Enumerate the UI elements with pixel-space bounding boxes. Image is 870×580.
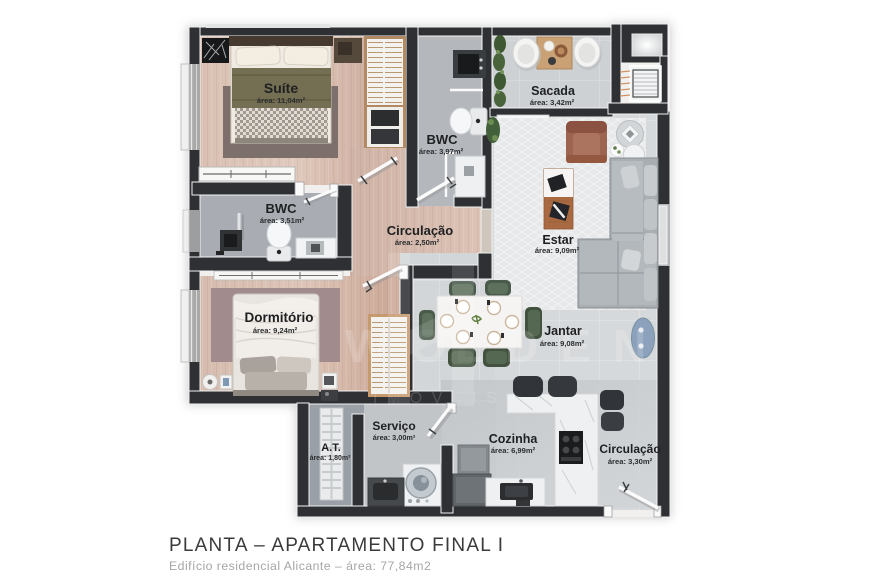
svg-text:área: 3,51m²: área: 3,51m² bbox=[260, 216, 305, 225]
svg-text:PLANTA – APARTAMENTO FINAL I: PLANTA – APARTAMENTO FINAL I bbox=[169, 535, 504, 556]
svg-text:WO: WO bbox=[345, 320, 468, 372]
svg-text:área: 11,04m²: área: 11,04m² bbox=[257, 96, 306, 105]
svg-text:área: 3,30m²: área: 3,30m² bbox=[608, 457, 653, 466]
svg-text:IMÓVEIS: IMÓVEIS bbox=[373, 388, 506, 407]
svg-text:Cozinha: Cozinha bbox=[489, 432, 539, 446]
svg-text:área: 2,50m²: área: 2,50m² bbox=[395, 238, 440, 247]
svg-text:Circulação: Circulação bbox=[599, 442, 660, 456]
svg-text:área: 9,24m²: área: 9,24m² bbox=[253, 326, 298, 335]
svg-text:BWC: BWC bbox=[426, 132, 458, 147]
svg-text:Serviço: Serviço bbox=[372, 419, 415, 433]
svg-text:Sacada: Sacada bbox=[531, 84, 576, 98]
svg-text:área: 1,80m²: área: 1,80m² bbox=[310, 455, 352, 462]
svg-text:BWC: BWC bbox=[265, 201, 297, 216]
svg-text:área: 9,08m²: área: 9,08m² bbox=[540, 339, 585, 348]
svg-text:Dormitório: Dormitório bbox=[245, 310, 314, 325]
svg-text:Edifício residencial Alicante: Edifício residencial Alicante – área: 77… bbox=[169, 559, 431, 573]
svg-text:área: 3,00m²: área: 3,00m² bbox=[373, 433, 416, 442]
svg-text:Jantar: Jantar bbox=[544, 324, 582, 338]
svg-text:Circulação: Circulação bbox=[387, 223, 454, 238]
svg-text:área: 3,42m²: área: 3,42m² bbox=[530, 98, 575, 107]
svg-text:Suíte: Suíte bbox=[264, 80, 298, 96]
svg-text:Estar: Estar bbox=[542, 233, 573, 247]
svg-text:área: 9,09m²: área: 9,09m² bbox=[535, 246, 580, 255]
svg-text:A.T.: A.T. bbox=[321, 442, 341, 454]
svg-text:área: 3,97m²: área: 3,97m² bbox=[419, 147, 464, 156]
svg-text:área: 6,99m²: área: 6,99m² bbox=[491, 446, 536, 455]
